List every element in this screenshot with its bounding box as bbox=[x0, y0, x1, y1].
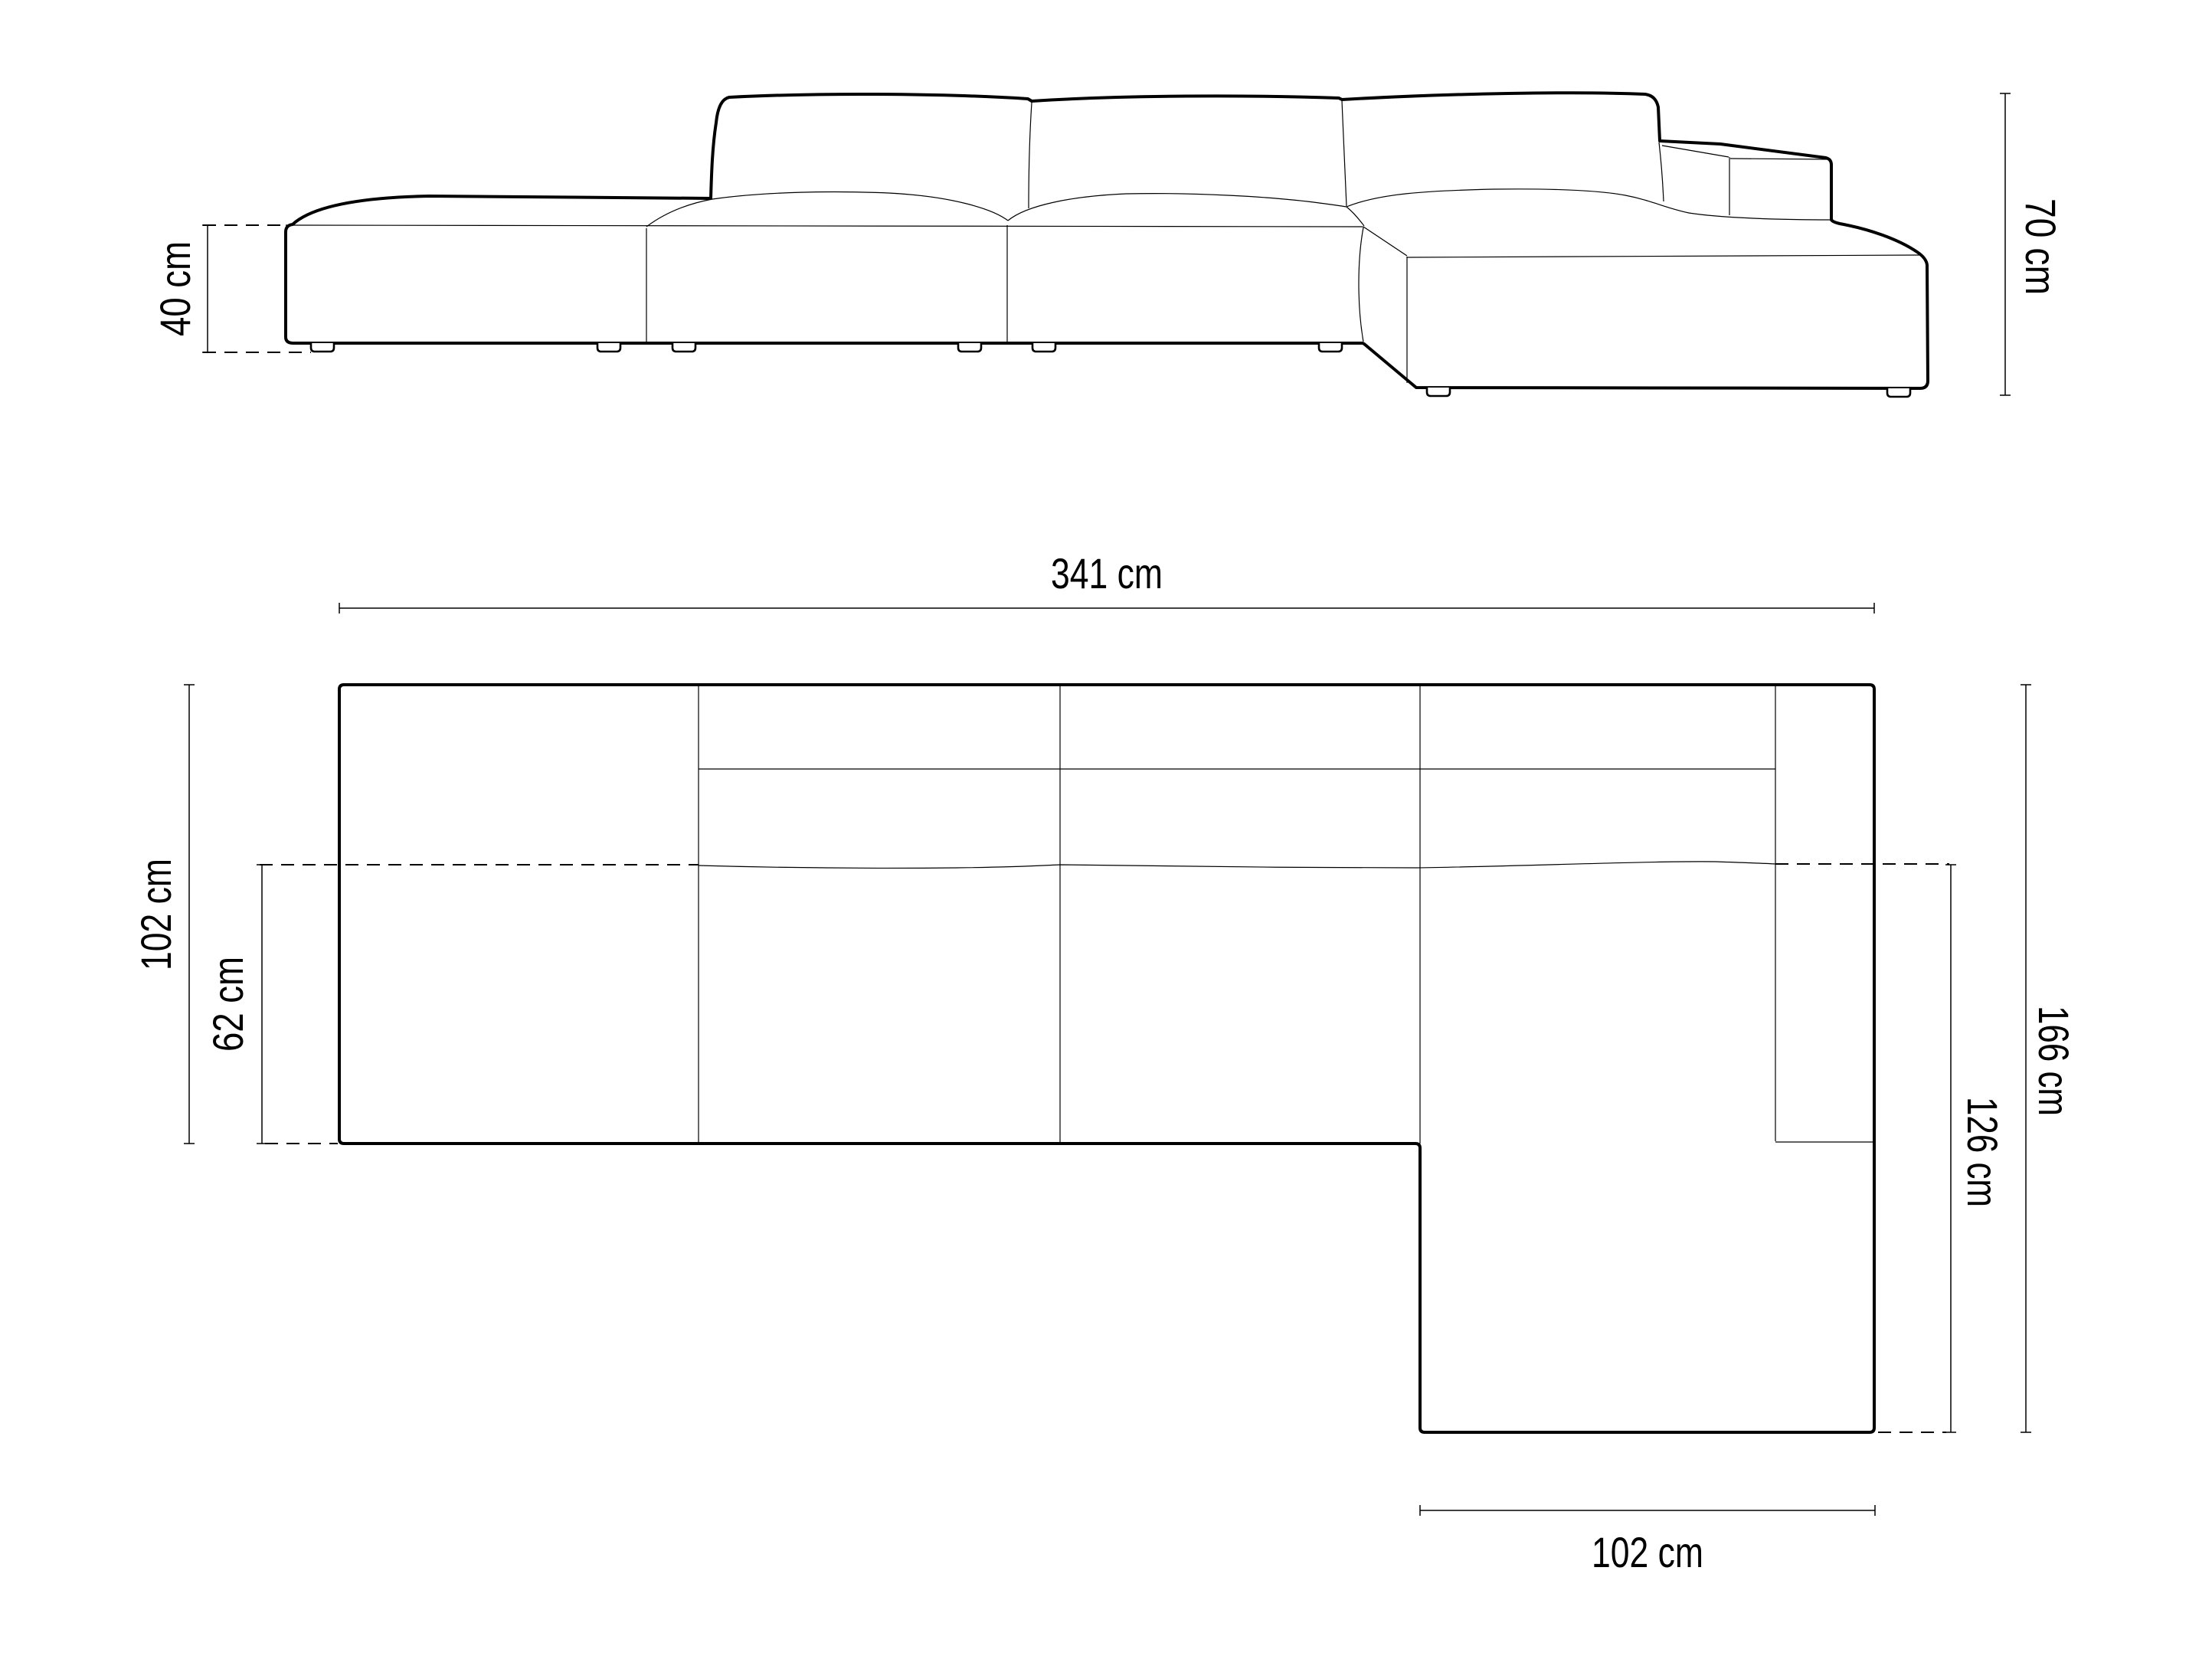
svg-text:70 cm: 70 cm bbox=[2017, 198, 2065, 295]
svg-text:40 cm: 40 cm bbox=[151, 241, 199, 336]
svg-text:341 cm: 341 cm bbox=[1051, 549, 1163, 597]
svg-text:126 cm: 126 cm bbox=[1958, 1097, 2007, 1207]
svg-text:102 cm: 102 cm bbox=[132, 859, 180, 970]
svg-text:102 cm: 102 cm bbox=[1592, 1528, 1703, 1576]
svg-text:62 cm: 62 cm bbox=[204, 957, 252, 1052]
svg-text:166 cm: 166 cm bbox=[2030, 1006, 2078, 1116]
